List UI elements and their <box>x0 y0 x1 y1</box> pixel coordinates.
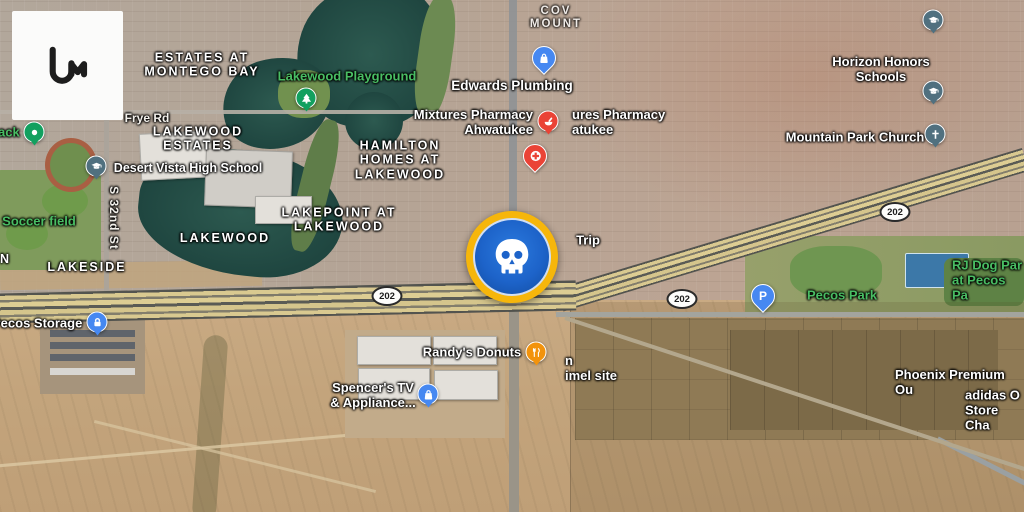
poi-label-mixtures-pharmacy: Mixtures Pharmacy Ahwatukee <box>414 108 533 138</box>
poi-label-spencers-tv-appliance: Spencer's TV & Appliance... <box>330 381 415 411</box>
warehouse <box>434 370 498 400</box>
neighborhood-label-lakewood: LAKEWOOD <box>180 231 270 245</box>
desert-vista-school-icon[interactable] <box>86 156 107 177</box>
park-dot-icon[interactable] <box>24 122 45 143</box>
dot-glyph <box>28 126 40 138</box>
warehouse <box>357 336 431 365</box>
storage-row <box>50 342 135 349</box>
graduation-cap-glyph <box>927 14 939 26</box>
neighborhood-label-lakepoint: LAKEPOINT AT LAKEWOOD <box>282 206 397 235</box>
storage-lock-icon[interactable] <box>87 312 108 333</box>
horizon-school-icon-1[interactable] <box>923 10 944 31</box>
fork-knife-glyph <box>530 346 542 358</box>
horizon-school-icon-2[interactable] <box>923 81 944 102</box>
neighborhood-label-lakewood-estates: LAKEWOOD ESTATES <box>153 125 243 154</box>
padlock-glyph <box>91 316 103 328</box>
route-202-shield-east: 202 <box>880 202 911 222</box>
parking-p-glyph: P <box>759 289 767 303</box>
route-202-shield-west: 202 <box>372 286 403 306</box>
pecos-road <box>556 312 1024 317</box>
tree-glyph <box>300 92 312 104</box>
poi-label-pecos-storage: Pecos Storage <box>0 317 82 332</box>
park-label-partial-ack: ack <box>0 126 20 141</box>
neighborhood-label-cove-mountain-partial: COV MOUNT <box>530 5 582 31</box>
graduation-cap-glyph <box>90 160 102 172</box>
street-label-frye-rd: Frye Rd <box>125 112 170 126</box>
graduation-cap-glyph <box>927 85 939 97</box>
skull-icon <box>489 234 535 280</box>
church-icon[interactable] <box>925 124 946 145</box>
poi-label-quiktrip-partial: Trip <box>576 234 600 249</box>
storage-row <box>50 354 135 361</box>
neighborhood-label-estates-at-montego-bay: ESTATES AT MONTEGO BAY <box>144 51 259 80</box>
poi-label-randys-donuts: Randy's Donuts <box>423 346 521 361</box>
medical-cross-glyph <box>529 150 542 163</box>
route-202-shield-center: 202 <box>667 289 698 309</box>
liveuamap-logo[interactable] <box>12 11 123 120</box>
event-marker-disc <box>473 218 551 296</box>
street-label-s-32nd-st: S 32nd St <box>106 186 120 250</box>
cross-glyph <box>929 128 941 140</box>
park-label-rj-dog-park: RJ Dog Par at Pecos Pa <box>952 259 1024 304</box>
park-label-soccer-field: Soccer field <box>2 215 76 230</box>
pharmacy-icon[interactable] <box>538 111 559 132</box>
neighborhood-label-fragment-n: N <box>0 252 11 266</box>
storage-row <box>50 368 135 375</box>
playground-tree-icon[interactable] <box>296 88 317 109</box>
neighborhood-label-hamilton-homes: HAMILTON HOMES AT LAKEWOOD <box>355 138 445 181</box>
spencers-shopping-icon[interactable] <box>418 384 439 405</box>
poi-label-adidas-outlet-partial: adidas O Store Cha <box>965 389 1024 434</box>
poi-label-mixtures-pharmacy-duplicate: ures Pharmacy atukee <box>572 108 665 138</box>
park-label-lakewood-playground: Lakewood Playground <box>278 70 417 85</box>
park-label-pecos-park: Pecos Park <box>807 289 877 304</box>
liveuamap-satellite-map: ESTATES AT MONTEGO BAY LAKEWOOD ESTATES … <box>0 0 1024 512</box>
poi-label-kimel-site-partial: n imel site <box>565 354 617 384</box>
restaurant-icon[interactable] <box>526 342 547 363</box>
poi-label-desert-vista-high-school: Desert Vista High School <box>114 161 262 175</box>
poi-label-edwards-plumbing: Edwards Plumbing <box>451 78 573 94</box>
neighborhood-label-lakeside: LAKESIDE <box>47 260 126 274</box>
shopping-bag-glyph <box>422 388 434 400</box>
shopping-bag-glyph <box>538 52 550 64</box>
skull-event-marker[interactable] <box>466 211 558 303</box>
vertical-road-south <box>509 288 519 512</box>
mortar-pestle-glyph <box>542 115 554 127</box>
poi-label-mountain-park-church: Mountain Park Church <box>786 131 925 146</box>
um-logo-glyph <box>32 30 104 102</box>
